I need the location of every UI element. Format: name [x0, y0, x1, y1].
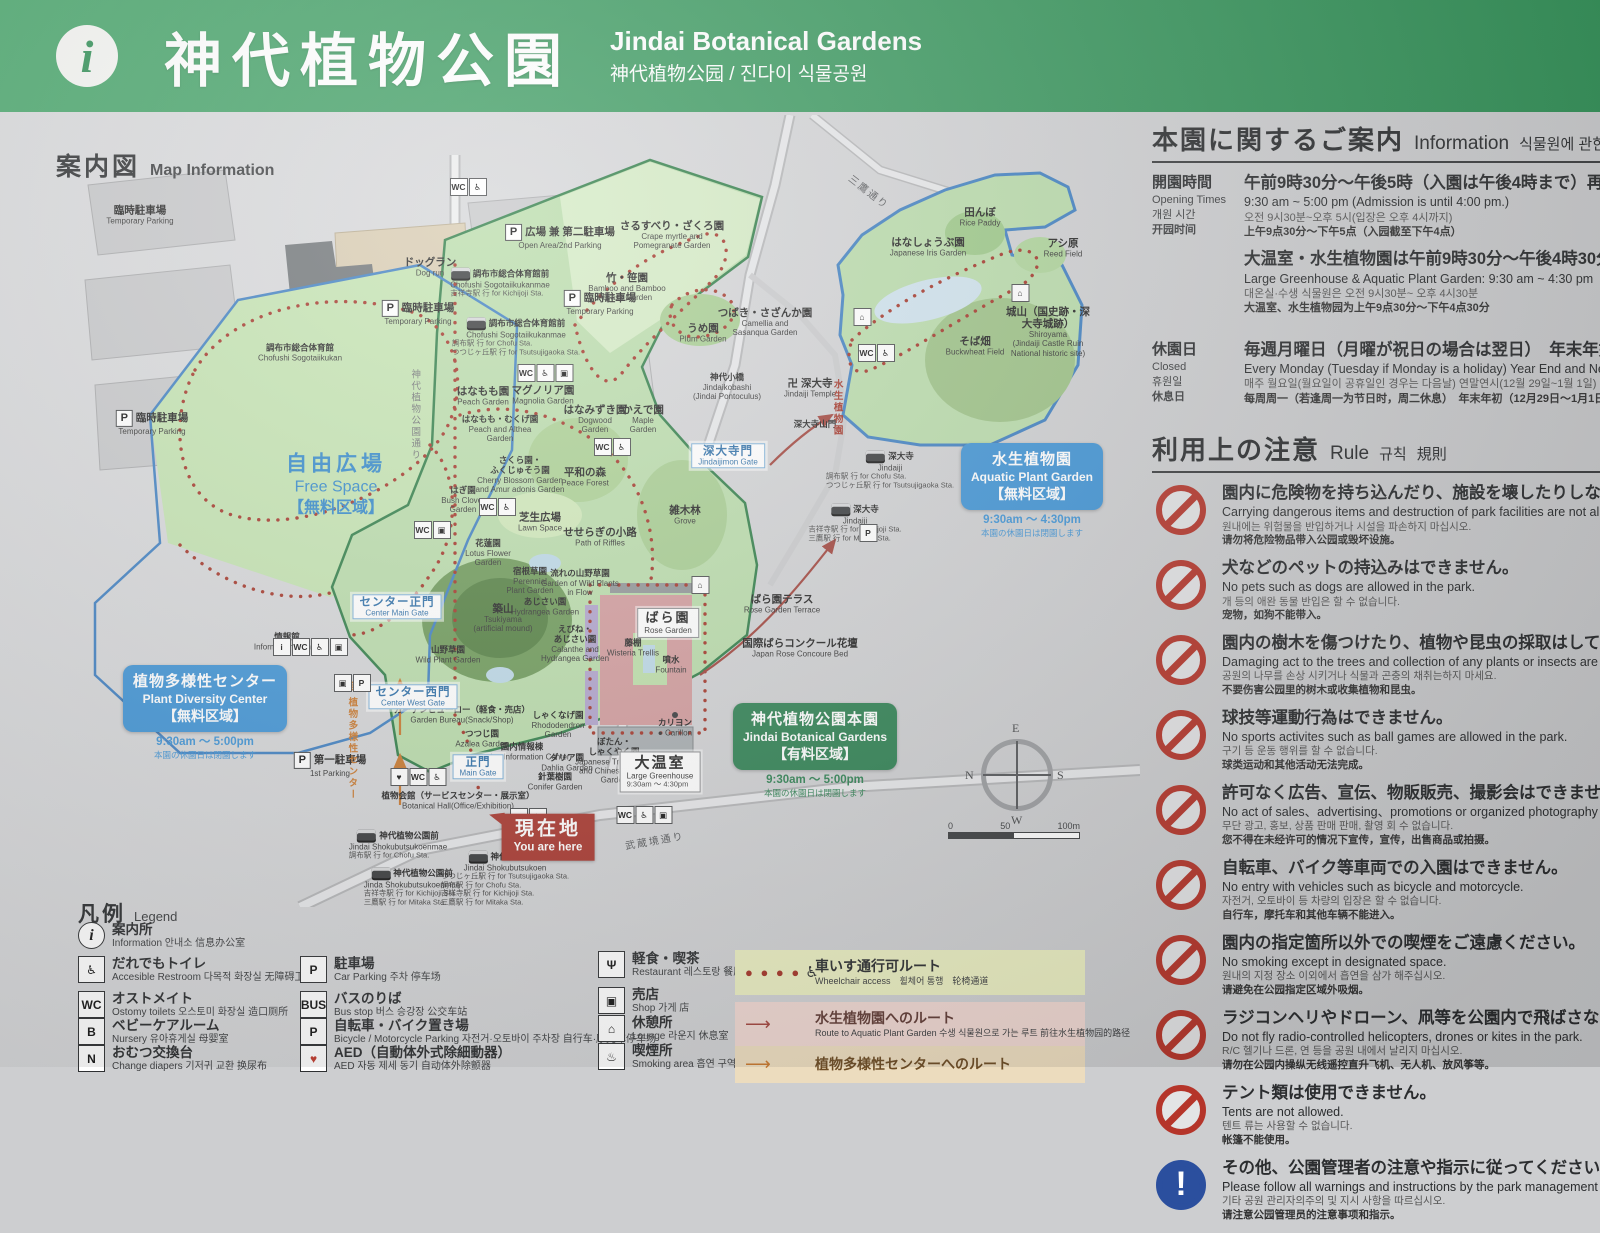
map-label: はなしょうぶ園 Japanese Iris Garden: [890, 236, 967, 257]
rule-item: テント類は使用できません。 Tents are not allowed. 텐트 …: [1152, 1083, 1600, 1148]
map-label: マグノリア園 Magnolia Garden: [512, 384, 575, 405]
facility-icon: P: [353, 674, 371, 692]
parking-icon: [116, 410, 133, 427]
facility-icon: i: [273, 638, 291, 656]
map-heading-ja: 案内図: [56, 153, 140, 181]
page-title-ja: 神代植物公園: [164, 14, 572, 98]
dotted-route-icon: ● ● ● ●♿: [745, 963, 815, 981]
map-label: 築山 Tsukiyama (artificial mound): [473, 603, 532, 633]
prohibition-icon: [1156, 860, 1206, 910]
legend-item: WC オストメイト Ostomy toilets 오스토미 화장실 造口厕所: [78, 991, 288, 1019]
main-garden-badge: 神代植物公園本園 Jindai Botanical Gardens 【有料区域】…: [733, 703, 897, 799]
legend-item: ▣ 売店 Shop 가게 店: [598, 987, 689, 1015]
map-heading: 案内図Map Information: [56, 147, 274, 183]
map-panel: 案内図Map Information 臨時駐車場 Temporary Parki…: [0, 115, 1140, 907]
parking-icon: [382, 300, 399, 317]
map-label: 深大寺 Jindaiji 調布駅 行 for Chofu Sta. つつじヶ丘駅…: [826, 450, 954, 489]
prohibition-icon: [1156, 785, 1206, 835]
facility-icon: WC: [414, 521, 432, 539]
arrow-icon: ⟶: [745, 1054, 815, 1075]
facility-icon: ⌂: [691, 576, 709, 594]
map-label: 雑木林 Grove: [669, 504, 701, 525]
legend-icon: Ψ: [598, 951, 625, 978]
facility-icon-cluster: ▣P: [333, 674, 371, 692]
prohibition-icon: [1156, 485, 1206, 535]
header-banner: i 神代植物公園 Jindai Botanical Gardens 神代植物公园…: [0, 0, 1600, 112]
map-label: さくら園・ ふくじゅそう園 Cherry Blossom Garden and …: [476, 456, 565, 494]
legend-item: P 駐車場 Car Parking 주차 停车场: [300, 956, 441, 984]
rule-item: ラジコンヘリやドローン、凧等を公園内で飛ばさないでください。 Do not fl…: [1152, 1008, 1600, 1073]
rules-list: 園内に危険物を持ち込んだり、施設を壊したりしないでください。 Carrying …: [1152, 483, 1600, 1223]
info-heading: 本園に関するご案内Information식물원에 관한 안내: [1152, 120, 1600, 163]
map-label: しゃくなげ園 Rhododendron Garden: [532, 711, 585, 739]
map-label: ドッグラン Dog run: [404, 256, 457, 277]
info-icon: i: [56, 25, 118, 87]
facility-icon-cluster: WC♿▣: [517, 364, 574, 382]
map-label: 水生植物園: [831, 379, 886, 437]
bus-icon: [467, 317, 486, 330]
prohibition-icon: [1156, 560, 1206, 610]
map-label: 臨時駐車場 Temporary Parking: [382, 300, 455, 326]
facility-icon-cluster: ♥WC♿: [390, 768, 447, 786]
facility-icon-cluster: ⌂: [1011, 284, 1030, 302]
map-label: アシ原 Reed Field: [1044, 237, 1083, 258]
facility-icon: WC: [292, 638, 310, 656]
legend-icon: i: [78, 922, 105, 949]
bus-icon: [357, 830, 376, 843]
facility-icon: ♥: [390, 768, 408, 786]
aquatic-garden-badge: 水生植物園 Aquatic Plant Garden 【無料区域】 9:30am…: [961, 443, 1103, 539]
map-label: せせらぎの小路 Path of Riffles: [563, 526, 637, 547]
legend-icon: N: [78, 1045, 105, 1072]
facility-icon: WC: [517, 364, 535, 382]
facility-icon: WC: [409, 768, 427, 786]
facility-icon: ♿: [428, 768, 446, 786]
bus-icon: [468, 851, 487, 864]
page-title-sub: 神代植物公园 / 진다이 식물공원: [610, 63, 922, 87]
legend-icon: P: [300, 956, 327, 983]
map-label: 竹・笹園 Bamboo and Bamboo Grass Garden: [588, 272, 665, 302]
facility-icon: ▣: [433, 521, 451, 539]
legend-route-wheelchair: ● ● ● ●♿ 車いす通行可ルート Wheelchair access 휠체어…: [735, 950, 1085, 995]
facility-icon: ▣: [654, 806, 672, 824]
map-label: 大温室 Large Greenhouse 9:30am ～ 4:30pm: [620, 751, 701, 792]
map-label: 臨時駐車場 Temporary Parking: [106, 204, 173, 225]
legend-item: ♥ AED（自動体外式除細動器） AED 자동 제세 동기 自动体外除颤器: [300, 1045, 511, 1073]
rule-item: 犬などのペットの持込みはできません。 No pets such as dogs …: [1152, 558, 1600, 623]
prohibition-icon: [1156, 1010, 1206, 1060]
map-label: つばき・さざんか園 Camellia and Sasanqua Garden: [718, 307, 813, 337]
bus-icon: [831, 503, 850, 516]
facility-icon-cluster: iWC♿▣: [272, 638, 348, 656]
map-label: 調布市総合体育館前 Chofushi Sogotaiikukanmae 調布駅 …: [452, 317, 580, 356]
page-title-en: Jindai Botanical Gardens: [610, 25, 922, 58]
facility-icon: ⌂: [853, 308, 871, 326]
map-label: 神代植物公園前 Jindai Shokubutsukoenmae 調布駅 行 f…: [349, 830, 447, 861]
legend-icon: ♨: [598, 1043, 625, 1070]
facility-icon: ♿: [469, 178, 487, 196]
compass-rose: E N S W: [981, 739, 1053, 811]
closed-days-row: 休園日 Closed 휴원일 休息日 毎週月曜日（月曜が祝日の場合は翌日） 年末…: [1152, 340, 1600, 416]
map-label: 臨時駐車場 Temporary Parking: [116, 410, 189, 436]
prohibition-icon: [1156, 1085, 1206, 1135]
rules-heading: 利用上の注意Rule규칙規則: [1152, 430, 1600, 473]
facility-icon-cluster: ⌂: [853, 308, 872, 326]
facility-icon: ♿: [635, 806, 653, 824]
legend-route-diversity: ⟶ 植物多様性センターへのルート: [735, 1046, 1085, 1083]
facility-icon: WC: [479, 498, 497, 516]
sign-board: i 神代植物公園 Jindai Botanical Gardens 神代植物公园…: [0, 0, 1600, 1067]
map-label: ばら園テラス Rose Garden Terrace: [744, 593, 820, 614]
facility-icon: ♿: [311, 638, 329, 656]
legend-item: ⌂ 休憩所 Lounge 라운지 休息室: [598, 1015, 729, 1043]
facility-icon-cluster: WC♿: [857, 344, 895, 362]
map-label: はなみずき園 Dogwood Garden: [564, 404, 627, 434]
legend-route-aquatic: ⟶ 水生植物園へのルート Route to Aquatic Plant Gard…: [735, 1002, 1085, 1047]
map-label: かえで園 Maple Garden: [622, 404, 664, 434]
facility-icon: WC: [450, 178, 468, 196]
map-label: 調布市総合体育館前 Chofushi Sogotaiikukanmae 吉祥寺駅…: [450, 268, 550, 299]
facility-icon: ♿: [536, 364, 554, 382]
scale-bar: 050100m: [948, 821, 1080, 839]
map-label: そば畑 Buckwheat Field: [946, 335, 1005, 356]
legend-icon: ♥: [300, 1045, 327, 1072]
map-label: 山野草園 Wild Plant Garden: [416, 646, 481, 665]
plant-diversity-badge: 植物多様性センター Plant Diversity Center 【無料区域】 …: [123, 665, 287, 761]
prohibition-icon: !: [1156, 1160, 1206, 1210]
gate-label: 深大寺門 Jindaijimon Gate: [691, 443, 765, 468]
rule-item: 自転車、バイク等車両での入園はできません。 No entry with vehi…: [1152, 858, 1600, 923]
map-label: カリヨン ● Carillon: [658, 719, 692, 738]
gate-label: センター西門 Center West Gate: [369, 684, 458, 709]
map-label: 田んぼ Rice Paddy: [960, 206, 1001, 227]
prohibition-icon: [1156, 635, 1206, 685]
map-label: 噴水 Fountain: [655, 656, 686, 675]
facility-icon: ▣: [330, 638, 348, 656]
facility-icon: ♿: [877, 344, 895, 362]
rule-item: ! その他、公園管理者の注意や指示に従ってください。 Please follow…: [1152, 1158, 1600, 1223]
map-label: えびね・ あじさい園 Calanthe and Hydrangea Garden: [541, 625, 609, 663]
facility-icon: ♿: [613, 438, 631, 456]
map-label: 平和の森 Peace Forest: [561, 466, 609, 487]
facility-icon-cluster: WC♿: [449, 178, 487, 196]
gate-label: 正門 Main Gate: [453, 754, 504, 779]
bus-icon: [451, 268, 470, 281]
map-label: 卍 深大寺 Jindaiji Temple: [784, 377, 836, 398]
facility-icon: P: [859, 524, 877, 542]
facility-icon-cluster: P: [859, 524, 878, 542]
legend-icon: WC: [78, 991, 105, 1018]
parking-icon: [564, 290, 581, 307]
legend-item: ♿ だれでもトイレ Accesible Restroom 다목적 화장실 无障碍…: [78, 956, 324, 984]
rule-item: 許可なく広告、宣伝、物販販売、撮影会はできません。 No act of sale…: [1152, 783, 1600, 848]
facility-icon: WC: [616, 806, 634, 824]
arrow-icon: ⟶: [745, 1014, 815, 1035]
legend-icon: B: [78, 1018, 105, 1045]
facility-icon: ♿: [498, 498, 516, 516]
facility-icon: ▣: [334, 674, 352, 692]
parking-icon: [505, 224, 522, 241]
legend-icon: BUS: [300, 991, 327, 1018]
map-heading-en: Map Information: [150, 162, 274, 179]
you-are-here-badge: 現在地 You are here: [502, 814, 595, 861]
facility-icon: WC: [594, 438, 612, 456]
rule-item: 園内に危険物を持ち込んだり、施設を壊したりしないでください。 Carrying …: [1152, 483, 1600, 548]
rule-item: 園内の指定箇所以外での喫煙をご遠慮ください。 No smoking except…: [1152, 933, 1600, 998]
map-label: 神代小橋 Jindaikobashi (Jindai Pontoculus): [693, 373, 761, 401]
legend-item: BUS バスのりば Bus stop 버스 승강장 公交车站: [300, 991, 467, 1019]
facility-icon-cluster: WC♿: [593, 438, 631, 456]
legend-item: i 案内所 Information 안내소 信息办公室: [78, 922, 245, 950]
legend-icon: ⌂: [598, 1015, 625, 1042]
parking-icon: [294, 752, 311, 769]
facility-icon-cluster: WC▣: [413, 521, 451, 539]
legend-item: N おむつ交換台 Change diapers 기저귀 교환 换尿布: [78, 1045, 267, 1073]
facility-icon: ▣: [555, 364, 573, 382]
map-label: 調布市総合体育館 Chofushi Sogotaiikukan: [258, 344, 342, 363]
prohibition-icon: [1156, 935, 1206, 985]
map-label: 芝生広場 Lawn Space: [518, 511, 562, 532]
map-label: 広場 兼 第二駐車場 Open Area/2nd Parking: [505, 224, 615, 250]
map-label: 神代植物公園通り: [408, 369, 495, 461]
rule-item: 園内の樹木を傷つけたり、植物や昆虫の採取はしてはいけません。 Damaging …: [1152, 633, 1600, 698]
legend-icon: ♿: [78, 956, 105, 983]
map-label: 流れの山野草園 Garden of Wild Plants in Flow: [541, 569, 619, 597]
gate-label: センター正門 Center Main Gate: [353, 594, 442, 619]
legend-icon: P: [300, 1018, 327, 1045]
legend-item: B ベビーケアルーム Nursery 유아휴게실 母婴室: [78, 1018, 229, 1046]
map-label: 国際ばらコンクール花壇 Japan Rose Concoure Bed: [742, 637, 858, 658]
facility-icon-cluster: WC♿: [478, 498, 516, 516]
map-label: さるすべり・ざくろ園 Crape myrtle and Pomegranate …: [620, 220, 724, 250]
legend-icon: ▣: [598, 987, 625, 1014]
legend-item: Ψ 軽食・喫茶 Restaurant 레스토랑 餐厅: [598, 951, 743, 979]
map-label: 藤棚 Wisteria Trellis: [607, 639, 659, 658]
facility-icon-cluster: ⌂: [691, 576, 710, 594]
rule-item: 球技等運動行為はできません。 No sports activites such …: [1152, 708, 1600, 773]
map-label: 神代植物公園前 Jinda Shokubutsukoenmae 吉祥寺駅 行 f…: [364, 867, 461, 906]
map-label: 深大寺 Jindaiji 吉祥寺駅 行 for Kichijoji Sta. 三…: [808, 503, 901, 542]
facility-icon: ⌂: [1011, 284, 1029, 302]
map-label: 城山（国史跡・深大寺城跡） Shiroyama (Jindaiji Castle…: [1002, 306, 1094, 358]
legend-item: P 自転車・バイク置き場 Bicycle / Motorcycle Parkin…: [300, 1018, 656, 1046]
map-label: ばら園 Rose Garden: [637, 608, 699, 638]
bus-icon: [371, 867, 390, 880]
bus-icon: [866, 450, 885, 463]
info-panel: 本園に関するご案内Information식물원에 관한 안내 開園時間 Open…: [1152, 120, 1600, 1233]
free-space-label: 自由広場 Free Space 【無料区域】: [286, 451, 386, 520]
map-label: 花蓮園 Lotus Flower Garden: [465, 539, 511, 567]
facility-icon: WC: [858, 344, 876, 362]
prohibition-icon: [1156, 710, 1206, 760]
facility-icon-cluster: WC♿▣: [616, 806, 673, 824]
opening-times-row: 開園時間 Opening Times 개원 시간 开园时间 午前9時30分～午後…: [1152, 173, 1600, 326]
